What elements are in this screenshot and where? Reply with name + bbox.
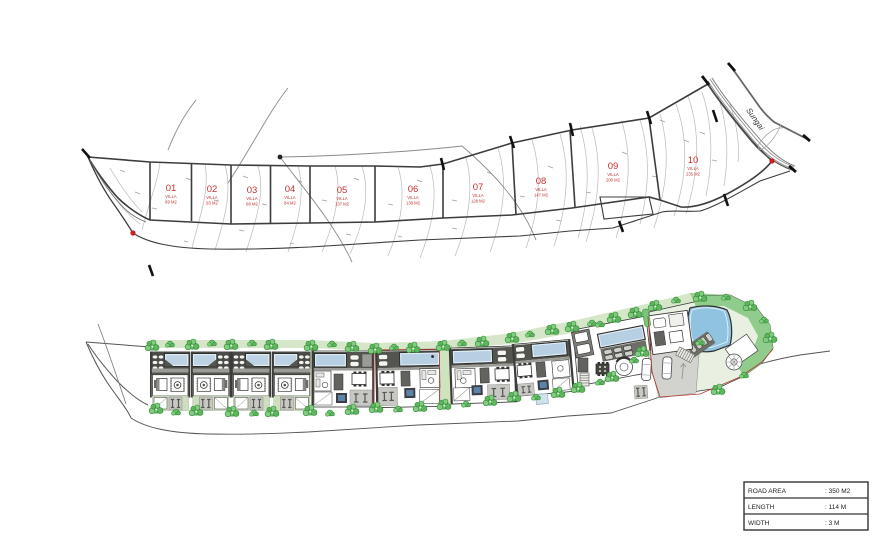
svg-text:06: 06: [408, 184, 419, 195]
svg-text:VILLA: VILLA: [472, 193, 484, 198]
svg-text:VILLA: VILLA: [407, 195, 419, 200]
svg-text:: 350 M2: : 350 M2: [825, 488, 851, 495]
svg-text:WIDTH: WIDTH: [748, 520, 770, 527]
svg-text:LENGTH: LENGTH: [748, 504, 775, 511]
svg-text:88 M2: 88 M2: [246, 202, 258, 207]
svg-text:: 3 M: : 3 M: [825, 520, 839, 527]
svg-text:01: 01: [166, 183, 177, 194]
svg-text:138 M2: 138 M2: [406, 201, 421, 206]
svg-text:VILLA: VILLA: [246, 196, 258, 201]
svg-text:04: 04: [285, 184, 296, 195]
svg-text:89 M2: 89 M2: [165, 200, 177, 205]
svg-text:VILLA: VILLA: [687, 166, 699, 171]
svg-text:02: 02: [207, 184, 218, 195]
svg-text:: 114 M: : 114 M: [825, 504, 846, 511]
svg-text:VILLA: VILLA: [535, 187, 547, 192]
svg-text:05: 05: [337, 185, 348, 196]
svg-text:128 M2: 128 M2: [471, 199, 486, 204]
svg-text:VILLA: VILLA: [165, 194, 177, 199]
svg-text:235 M2: 235 M2: [686, 172, 701, 177]
svg-text:93 M2: 93 M2: [206, 201, 218, 206]
svg-text:08: 08: [536, 176, 547, 187]
svg-text:200 M2: 200 M2: [606, 178, 621, 183]
svg-text:09: 09: [608, 161, 619, 172]
svg-text:84 M2: 84 M2: [284, 201, 296, 206]
svg-text:137 M2: 137 M2: [335, 202, 350, 207]
svg-text:VILLA: VILLA: [284, 195, 296, 200]
svg-text:03: 03: [247, 185, 258, 196]
svg-text:ROAD AREA: ROAD AREA: [748, 488, 787, 495]
svg-text:10: 10: [688, 155, 699, 166]
svg-text:147 M2: 147 M2: [534, 193, 549, 198]
svg-text:VILLA: VILLA: [607, 172, 619, 177]
svg-text:VILLA: VILLA: [206, 195, 218, 200]
svg-text:VILLA: VILLA: [336, 196, 348, 201]
svg-text:07: 07: [473, 182, 484, 193]
